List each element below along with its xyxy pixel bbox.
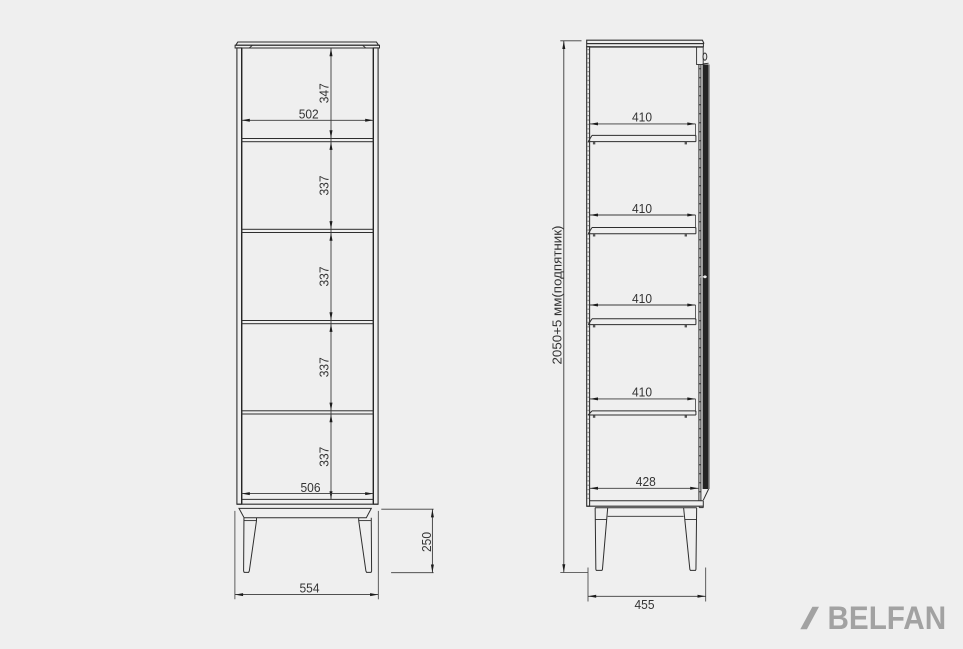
svg-text:2050+5 мм(подпятник): 2050+5 мм(подпятник): [550, 226, 565, 365]
svg-text:410: 410: [632, 110, 652, 125]
svg-text:410: 410: [632, 291, 652, 306]
svg-text:502: 502: [299, 106, 319, 121]
svg-text:410: 410: [632, 385, 652, 400]
svg-text:410: 410: [632, 201, 652, 216]
svg-text:554: 554: [300, 581, 320, 596]
svg-text:337: 337: [316, 267, 331, 287]
svg-text:455: 455: [635, 597, 655, 612]
svg-text:428: 428: [636, 474, 656, 489]
svg-text:337: 337: [316, 357, 331, 377]
svg-text:250: 250: [419, 532, 434, 552]
svg-text:337: 337: [316, 176, 331, 196]
svg-text:337: 337: [316, 447, 331, 467]
svg-text:506: 506: [301, 480, 321, 495]
svg-text:347: 347: [316, 83, 331, 103]
svg-text:BELFAN: BELFAN: [828, 600, 947, 636]
